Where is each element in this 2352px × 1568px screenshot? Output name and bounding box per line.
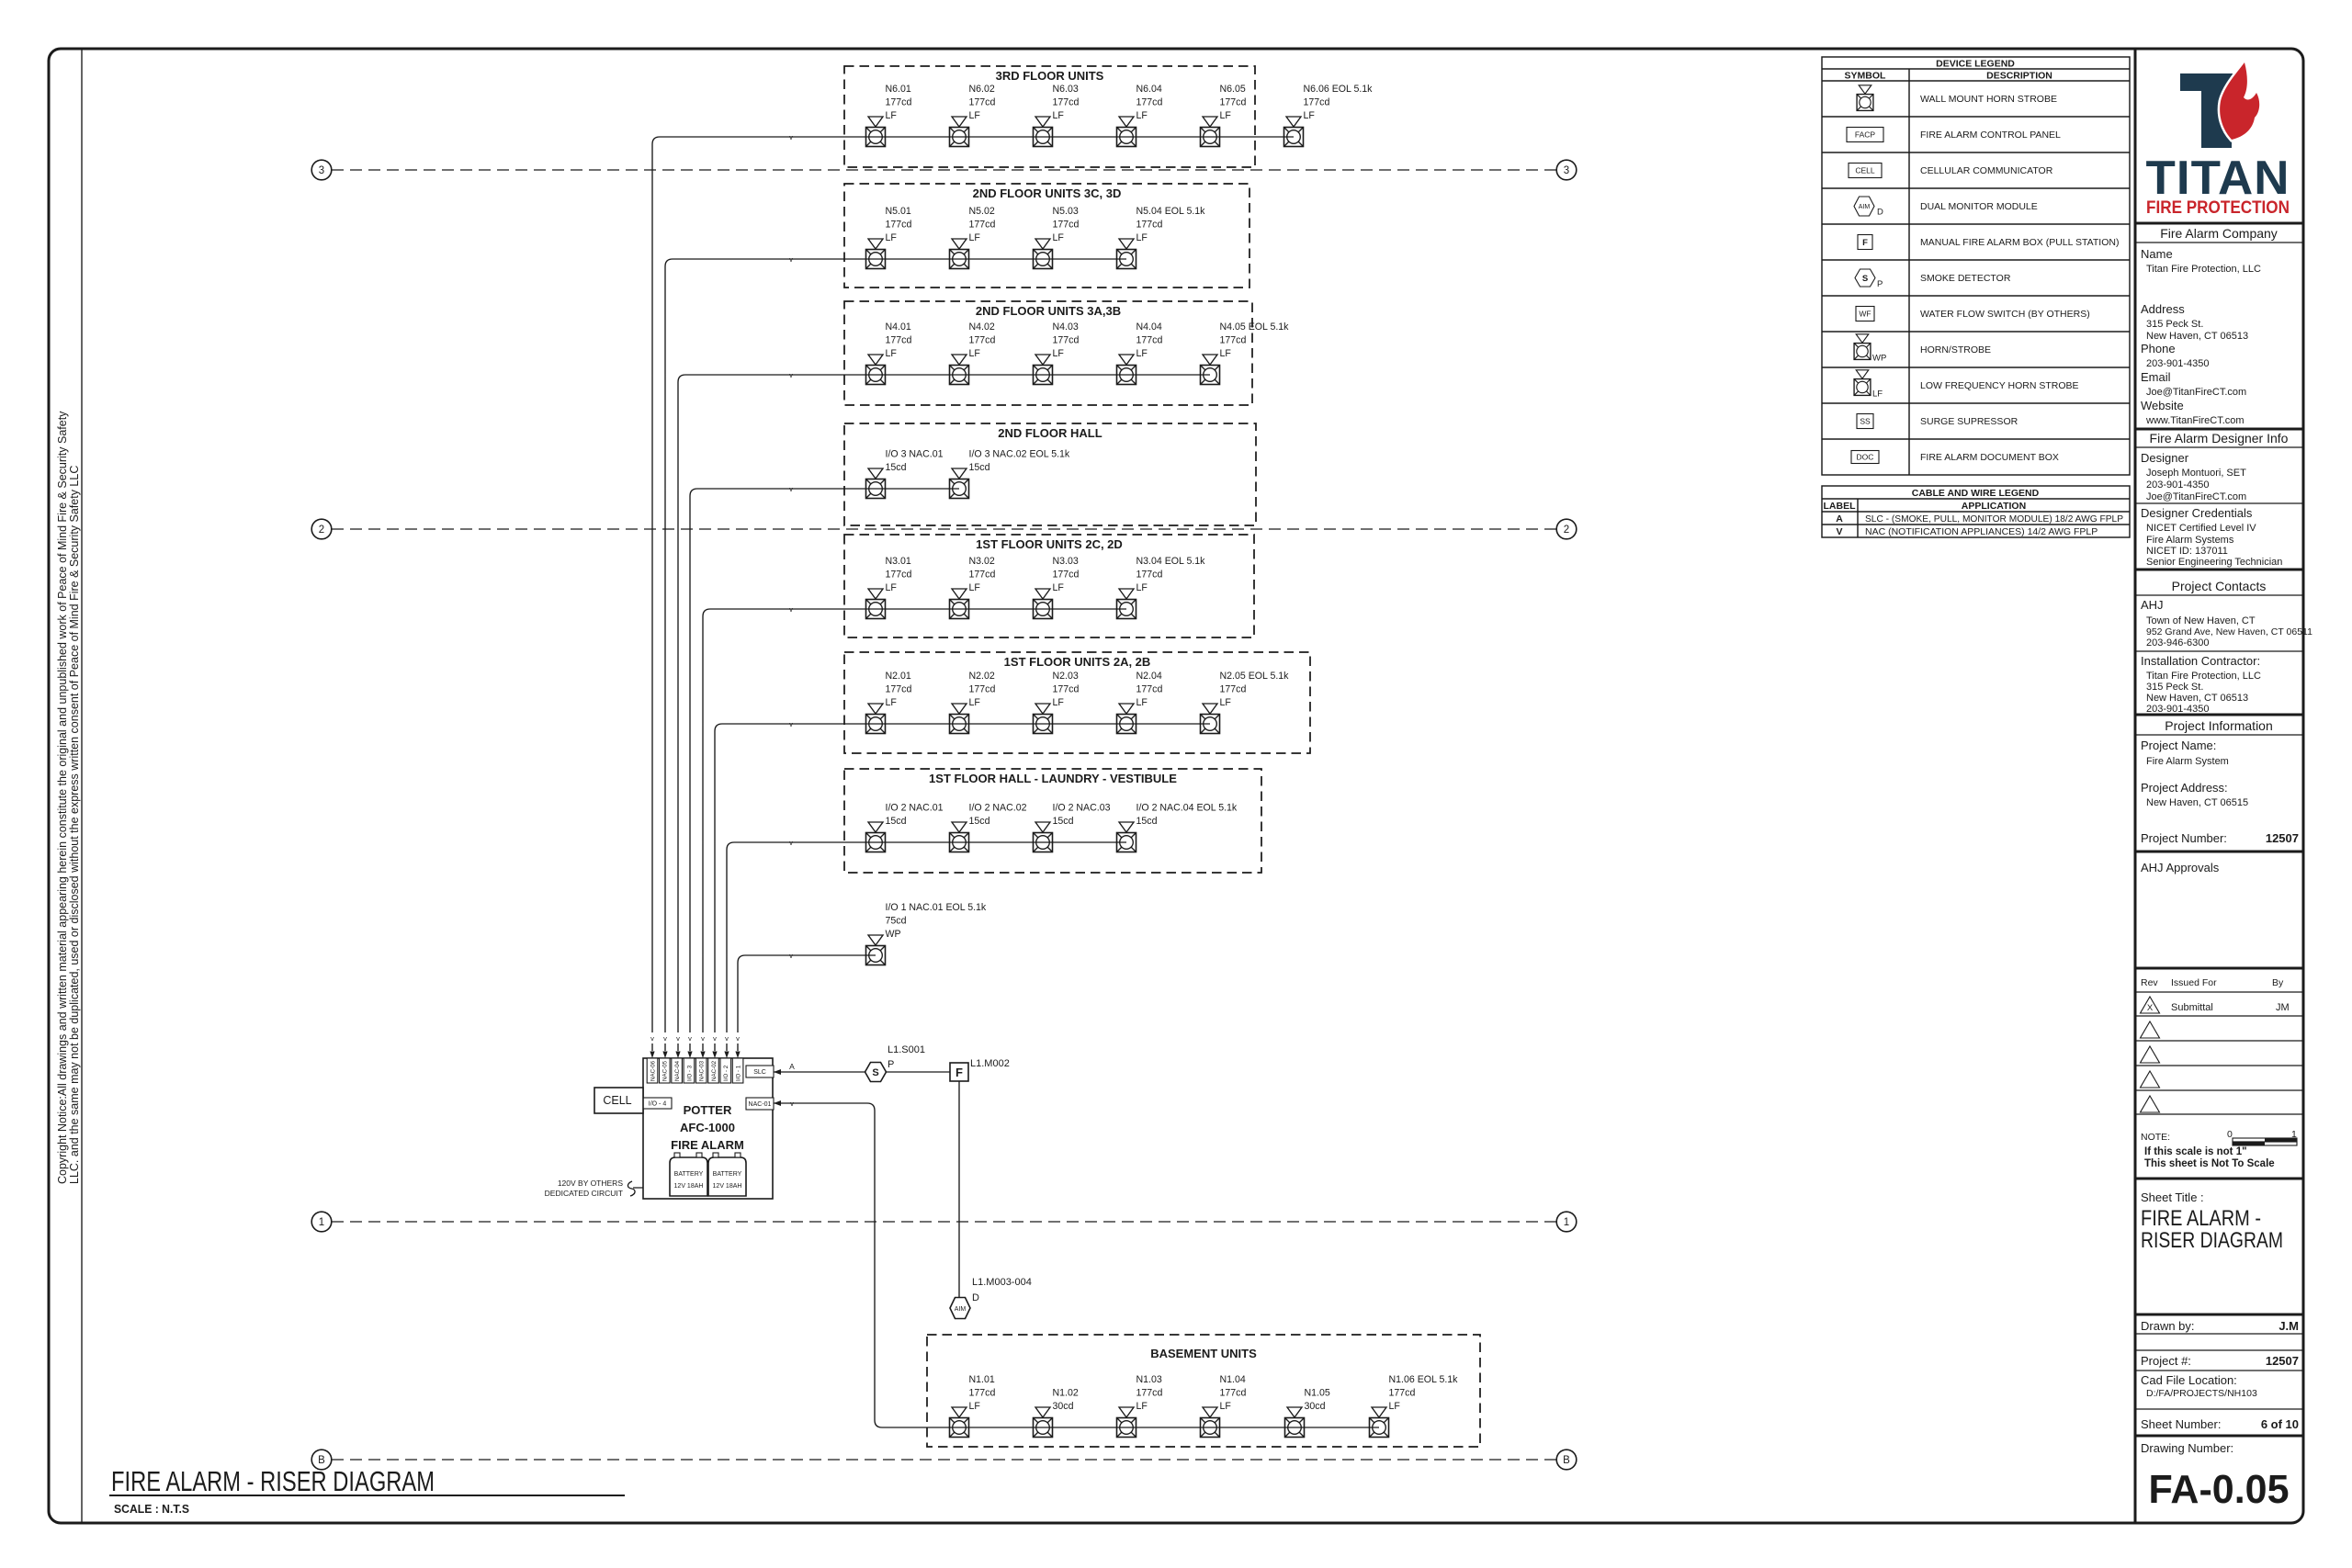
- svg-text:LF: LF: [1053, 697, 1065, 708]
- svg-text:Rev: Rev: [2141, 977, 2158, 988]
- svg-text:FACP: FACP: [1855, 130, 1876, 140]
- svg-text:Fire Alarm Systems: Fire Alarm Systems: [2146, 535, 2234, 546]
- svg-text:I/O 2 NAC.03: I/O 2 NAC.03: [1053, 803, 1111, 814]
- svg-text:This sheet is Not To Scale: This sheet is Not To Scale: [2144, 1158, 2275, 1169]
- svg-text:177cd: 177cd: [1136, 335, 1163, 346]
- svg-text:177cd: 177cd: [1136, 1388, 1163, 1399]
- svg-text:V: V: [1836, 526, 1842, 537]
- svg-text:Installation Contractor:: Installation Contractor:: [2141, 654, 2260, 668]
- svg-text:F: F: [1862, 238, 1868, 248]
- svg-text:SYMBOL: SYMBOL: [1845, 71, 1887, 82]
- svg-text:NAC-05: NAC-05: [662, 1060, 669, 1081]
- svg-text:I/O 2 NAC.02: I/O 2 NAC.02: [969, 803, 1027, 814]
- svg-text:P: P: [888, 1059, 894, 1070]
- svg-text:N1.03: N1.03: [1136, 1374, 1162, 1385]
- svg-text:AHJ: AHJ: [2141, 598, 2164, 612]
- svg-text:D: D: [1877, 208, 1883, 218]
- svg-text:LF: LF: [1053, 110, 1065, 121]
- svg-text:v: v: [650, 1034, 654, 1043]
- svg-text:DEDICATED CIRCUIT: DEDICATED CIRCUIT: [545, 1189, 623, 1198]
- svg-text:Fire Alarm System: Fire Alarm System: [2146, 756, 2229, 767]
- svg-text:CABLE AND WIRE LEGEND: CABLE AND WIRE LEGEND: [1912, 488, 2040, 499]
- svg-text:N1.04: N1.04: [1220, 1374, 1246, 1385]
- svg-text:N5.02: N5.02: [969, 206, 995, 217]
- svg-text:2ND FLOOR UNITS 3C, 3D: 2ND FLOOR UNITS 3C, 3D: [973, 186, 1122, 200]
- svg-text:LF: LF: [886, 697, 898, 708]
- svg-text:177cd: 177cd: [886, 684, 912, 695]
- svg-text:NAC-01: NAC-01: [749, 1101, 772, 1108]
- svg-text:Project Name:: Project Name:: [2141, 739, 2216, 752]
- svg-text:I/O 3 NAC.02 EOL 5.1k: I/O 3 NAC.02 EOL 5.1k: [969, 449, 1070, 460]
- svg-text:NICET Certified Level IV: NICET Certified Level IV: [2146, 523, 2256, 534]
- svg-text:177cd: 177cd: [886, 97, 912, 108]
- svg-text:LF: LF: [1053, 232, 1065, 243]
- svg-text:AIM: AIM: [1859, 204, 1871, 210]
- svg-text:BATTERY: BATTERY: [674, 1171, 704, 1178]
- svg-text:Sheet Title :: Sheet Title :: [2141, 1190, 2204, 1204]
- svg-text:177cd: 177cd: [1389, 1388, 1416, 1399]
- svg-text:952 Grand Ave, New Haven, CT 0: 952 Grand Ave, New Haven, CT 06511: [2146, 626, 2312, 637]
- svg-text:Project Number:: Project Number:: [2141, 831, 2227, 845]
- svg-text:1ST FLOOR UNITS 2A, 2B: 1ST FLOOR UNITS 2A, 2B: [1004, 655, 1151, 669]
- svg-text:N4.02: N4.02: [969, 321, 995, 333]
- svg-text:N4.03: N4.03: [1053, 321, 1079, 333]
- svg-text:NAC (NOTIFICATION APPLIANCES): NAC (NOTIFICATION APPLIANCES) 14/2 AWG F…: [1865, 526, 2098, 537]
- svg-text:MANUAL FIRE ALARM BOX (PULL ST: MANUAL FIRE ALARM BOX (PULL STATION): [1920, 237, 2119, 248]
- svg-text:APPLICATION: APPLICATION: [1962, 501, 2026, 512]
- svg-text:WATER FLOW SWITCH (BY OTHERS): WATER FLOW SWITCH (BY OTHERS): [1920, 309, 2090, 320]
- svg-text:Website: Website: [2141, 399, 2184, 412]
- svg-text:DOC: DOC: [1857, 453, 1874, 462]
- svg-text:AIM: AIM: [955, 1306, 967, 1313]
- svg-text:FIRE ALARM - RISER DIAGRAM: FIRE ALARM - RISER DIAGRAM: [111, 1465, 435, 1497]
- svg-text:Phone: Phone: [2141, 342, 2176, 355]
- svg-text:LF: LF: [1053, 582, 1065, 593]
- svg-text:www.TitanFireCT.com: www.TitanFireCT.com: [2145, 415, 2245, 426]
- svg-text:N6.06 EOL 5.1k: N6.06 EOL 5.1k: [1304, 84, 1374, 95]
- svg-text:LF: LF: [969, 348, 981, 359]
- svg-text:A: A: [1836, 513, 1843, 525]
- svg-text:N4.01: N4.01: [886, 321, 911, 333]
- svg-text:12507: 12507: [2266, 1354, 2299, 1368]
- svg-text:LF: LF: [969, 582, 981, 593]
- svg-text:Joe@TitanFireCT.com: Joe@TitanFireCT.com: [2146, 491, 2246, 502]
- svg-text:J.M: J.M: [2278, 1319, 2299, 1333]
- svg-text:2: 2: [319, 525, 324, 536]
- svg-text:SURGE SUPRESSOR: SURGE SUPRESSOR: [1920, 416, 2018, 427]
- svg-text:I/O 2 NAC.01: I/O 2 NAC.01: [886, 803, 944, 814]
- svg-text:Joseph Montuori, SET: Joseph Montuori, SET: [2146, 468, 2246, 479]
- svg-text:Joe@TitanFireCT.com: Joe@TitanFireCT.com: [2146, 387, 2246, 398]
- svg-text:WF: WF: [1859, 310, 1871, 319]
- svg-text:Email: Email: [2141, 370, 2171, 384]
- svg-text:SLC: SLC: [753, 1069, 766, 1076]
- svg-text:POTTER: POTTER: [684, 1103, 732, 1117]
- svg-text:LF: LF: [1872, 389, 1883, 400]
- svg-text:Sheet Number:: Sheet Number:: [2141, 1417, 2221, 1431]
- svg-text:I/O - 2: I/O - 2: [723, 1065, 729, 1081]
- svg-text:v: v: [676, 1034, 680, 1043]
- svg-text:1: 1: [1564, 1217, 1569, 1228]
- svg-text:LF: LF: [1220, 348, 1232, 359]
- svg-text:A: A: [789, 1062, 795, 1071]
- svg-text:N2.02: N2.02: [969, 671, 995, 682]
- svg-text:CELL: CELL: [603, 1094, 631, 1107]
- svg-text:203-901-4350: 203-901-4350: [2146, 479, 2210, 491]
- svg-text:Titan Fire Protection, LLC: Titan Fire Protection, LLC: [2146, 671, 2261, 682]
- svg-text:2ND FLOOR UNITS 3A,3B: 2ND FLOOR UNITS 3A,3B: [976, 304, 1121, 318]
- svg-text:LF: LF: [1304, 110, 1316, 121]
- svg-text:177cd: 177cd: [886, 220, 912, 231]
- svg-text:N2.04: N2.04: [1136, 671, 1162, 682]
- svg-text:177cd: 177cd: [886, 570, 912, 581]
- svg-text:B: B: [1563, 1455, 1570, 1466]
- svg-text:NAC-03: NAC-03: [699, 1060, 706, 1081]
- svg-text:N6.02: N6.02: [969, 84, 995, 95]
- svg-text:Submittal: Submittal: [2171, 1002, 2213, 1013]
- svg-text:15cd: 15cd: [1136, 816, 1158, 827]
- svg-text:15cd: 15cd: [969, 816, 990, 827]
- svg-text:v: v: [789, 720, 793, 728]
- svg-text:I/O 2 NAC.04 EOL 5.1k: I/O 2 NAC.04 EOL 5.1k: [1136, 803, 1238, 814]
- svg-text:12507: 12507: [2266, 831, 2299, 845]
- svg-text:I/O - 1: I/O - 1: [736, 1065, 742, 1081]
- svg-text:15cd: 15cd: [1053, 816, 1074, 827]
- svg-text:315 Peck St.: 315 Peck St.: [2146, 682, 2203, 693]
- svg-text:LF: LF: [1220, 697, 1232, 708]
- svg-text:1ST FLOOR HALL - LAUNDRY - VES: 1ST FLOOR HALL - LAUNDRY - VESTIBULE: [929, 772, 1177, 785]
- svg-text:v: v: [789, 133, 793, 141]
- svg-text:v: v: [789, 485, 793, 493]
- svg-text:S: S: [872, 1067, 878, 1078]
- svg-text:N6.04: N6.04: [1136, 84, 1162, 95]
- svg-text:Designer Credentials: Designer Credentials: [2141, 506, 2253, 520]
- svg-text:v: v: [789, 255, 793, 264]
- svg-text:N6.03: N6.03: [1053, 84, 1079, 95]
- svg-text:177cd: 177cd: [1053, 335, 1080, 346]
- svg-text:Designer: Designer: [2141, 451, 2189, 465]
- svg-text:v: v: [789, 952, 793, 960]
- svg-text:Name: Name: [2141, 247, 2173, 261]
- svg-text:New Haven, CT 06515: New Haven, CT 06515: [2146, 797, 2248, 808]
- svg-text:FIRE ALARM DOCUMENT BOX: FIRE ALARM DOCUMENT BOX: [1920, 452, 2059, 463]
- svg-text:WP: WP: [886, 929, 901, 940]
- svg-text:177cd: 177cd: [1053, 684, 1080, 695]
- svg-text:N2.01: N2.01: [886, 671, 911, 682]
- svg-text:N3.02: N3.02: [969, 556, 995, 567]
- svg-text:NAC-04: NAC-04: [674, 1060, 681, 1081]
- svg-text:177cd: 177cd: [1053, 220, 1080, 231]
- svg-text:Project Address:: Project Address:: [2141, 781, 2228, 795]
- svg-text:New Haven, CT 06513: New Haven, CT 06513: [2146, 331, 2248, 342]
- svg-text:I/O 3 NAC.01: I/O 3 NAC.01: [886, 449, 944, 460]
- svg-text:JM: JM: [2276, 1002, 2290, 1013]
- svg-text:1ST FLOOR UNITS 2C, 2D: 1ST FLOOR UNITS 2C, 2D: [976, 537, 1123, 551]
- svg-text:Address: Address: [2141, 302, 2185, 316]
- svg-text:2ND FLOOR HALL: 2ND FLOOR HALL: [998, 426, 1102, 440]
- svg-text:v: v: [789, 839, 793, 847]
- svg-text:15cd: 15cd: [886, 816, 907, 827]
- svg-text:S: S: [1862, 274, 1868, 284]
- svg-text:N1.06 EOL 5.1k: N1.06 EOL 5.1k: [1389, 1374, 1459, 1385]
- svg-text:v: v: [663, 1034, 667, 1043]
- svg-text:New Haven, CT 06513: New Haven, CT 06513: [2146, 693, 2248, 704]
- svg-text:WALL MOUNT HORN STROBE: WALL MOUNT HORN STROBE: [1920, 94, 2057, 105]
- svg-text:D:/FA/PROJECTS/NH103: D:/FA/PROJECTS/NH103: [2146, 1388, 2257, 1399]
- svg-text:LABEL: LABEL: [1824, 501, 1857, 512]
- svg-text:Drawing Number:: Drawing Number:: [2141, 1441, 2233, 1455]
- svg-text:SMOKE DETECTOR: SMOKE DETECTOR: [1920, 273, 2011, 284]
- svg-text:Town of New Haven, CT: Town of New Haven, CT: [2146, 615, 2256, 626]
- svg-text:FIRE PROTECTION: FIRE PROTECTION: [2146, 198, 2290, 218]
- svg-text:177cd: 177cd: [969, 684, 996, 695]
- svg-text:D: D: [972, 1292, 979, 1303]
- svg-text:1: 1: [319, 1217, 324, 1228]
- svg-text:N6.05: N6.05: [1220, 84, 1246, 95]
- svg-text:N5.01: N5.01: [886, 206, 911, 217]
- svg-text:LF: LF: [1389, 1401, 1401, 1412]
- svg-text:NOTE:: NOTE:: [2141, 1132, 2170, 1143]
- svg-text:N3.01: N3.01: [886, 556, 911, 567]
- svg-text:LF: LF: [886, 232, 898, 243]
- svg-text:2: 2: [1564, 525, 1569, 536]
- svg-text:LLC. and the same may not be d: LLC. and the same may not be duplicated,…: [68, 466, 81, 1184]
- svg-text:N6.01: N6.01: [886, 84, 911, 95]
- svg-text:Senior Engineering Technician: Senior Engineering Technician: [2146, 557, 2282, 568]
- svg-text:75cd: 75cd: [886, 916, 907, 927]
- svg-text:L1.M002: L1.M002: [970, 1058, 1010, 1069]
- svg-text:LF: LF: [1220, 1401, 1232, 1412]
- svg-text:Titan Fire Protection, LLC: Titan Fire Protection, LLC: [2146, 264, 2261, 275]
- svg-text:FIRE ALARM: FIRE ALARM: [671, 1138, 744, 1152]
- svg-text:N5.03: N5.03: [1053, 206, 1079, 217]
- svg-text:177cd: 177cd: [1220, 684, 1247, 695]
- svg-text:v: v: [725, 1034, 729, 1043]
- svg-text:v: v: [789, 605, 793, 614]
- svg-text:v: v: [701, 1034, 705, 1043]
- svg-text:DEVICE LEGEND: DEVICE LEGEND: [1936, 59, 2015, 70]
- svg-text:N2.05 EOL 5.1k: N2.05 EOL 5.1k: [1220, 671, 1290, 682]
- svg-text:I/O 1 NAC.01 EOL 5.1k: I/O 1 NAC.01 EOL 5.1k: [886, 902, 987, 913]
- svg-text:30cd: 30cd: [1053, 1401, 1074, 1412]
- svg-text:I/O - 4: I/O - 4: [649, 1101, 667, 1108]
- svg-text:Project #:: Project #:: [2141, 1354, 2191, 1368]
- svg-text:FIRE ALARM CONTROL PANEL: FIRE ALARM CONTROL PANEL: [1920, 130, 2061, 141]
- svg-text:N5.04 EOL 5.1k: N5.04 EOL 5.1k: [1136, 206, 1206, 217]
- svg-text:FA-0.05: FA-0.05: [2149, 1467, 2290, 1512]
- svg-text:P: P: [1877, 279, 1883, 289]
- svg-text:12V 18AH: 12V 18AH: [713, 1183, 742, 1190]
- svg-text:12V 18AH: 12V 18AH: [674, 1183, 704, 1190]
- svg-text:177cd: 177cd: [1220, 1388, 1247, 1399]
- svg-text:177cd: 177cd: [969, 1388, 996, 1399]
- svg-text:3RD FLOOR UNITS: 3RD FLOOR UNITS: [996, 69, 1104, 83]
- svg-text:15cd: 15cd: [969, 462, 990, 473]
- svg-text:177cd: 177cd: [1136, 97, 1163, 108]
- svg-text:177cd: 177cd: [1136, 684, 1163, 695]
- svg-text:177cd: 177cd: [886, 335, 912, 346]
- svg-text:LF: LF: [969, 232, 981, 243]
- svg-text:Project Information: Project Information: [2165, 718, 2273, 733]
- svg-text:LF: LF: [886, 110, 898, 121]
- svg-text:177cd: 177cd: [1220, 97, 1247, 108]
- svg-text:177cd: 177cd: [969, 220, 996, 231]
- svg-text:SCALE : N.T.S: SCALE : N.T.S: [114, 1503, 189, 1516]
- svg-text:LOW FREQUENCY HORN STROBE: LOW FREQUENCY HORN STROBE: [1920, 380, 2079, 391]
- svg-text:177cd: 177cd: [1304, 97, 1330, 108]
- svg-text:Fire Alarm Designer Info: Fire Alarm Designer Info: [2150, 431, 2289, 446]
- svg-text:BATTERY: BATTERY: [713, 1171, 742, 1178]
- svg-text:LF: LF: [1136, 1401, 1148, 1412]
- svg-text:N4.04: N4.04: [1136, 321, 1162, 333]
- svg-text:Project Contacts: Project Contacts: [2172, 579, 2267, 593]
- svg-text:LF: LF: [1136, 110, 1148, 121]
- svg-text:CELL: CELL: [1855, 166, 1875, 175]
- svg-text:SS: SS: [1860, 417, 1871, 426]
- svg-text:30cd: 30cd: [1305, 1401, 1326, 1412]
- svg-text:177cd: 177cd: [969, 97, 996, 108]
- svg-text:L1.S001: L1.S001: [888, 1044, 925, 1055]
- svg-text:Cad File Location:: Cad File Location:: [2141, 1373, 2237, 1387]
- svg-text:LF: LF: [1220, 110, 1232, 121]
- svg-text:177cd: 177cd: [1136, 570, 1163, 581]
- svg-text:Copyright Notice:All drawings: Copyright Notice:All drawings and writte…: [56, 411, 69, 1184]
- svg-text:CELLULAR COMMUNICATOR: CELLULAR COMMUNICATOR: [1920, 165, 2053, 176]
- svg-text:N1.05: N1.05: [1305, 1388, 1330, 1399]
- svg-text:N3.04 EOL 5.1k: N3.04 EOL 5.1k: [1136, 556, 1206, 567]
- svg-text:LF: LF: [969, 1401, 981, 1412]
- svg-text:I/O - 3: I/O - 3: [686, 1065, 693, 1081]
- svg-text:DUAL MONITOR MODULE: DUAL MONITOR MODULE: [1920, 201, 2038, 212]
- svg-text:SLC - (SMOKE, PULL, MONITOR MO: SLC - (SMOKE, PULL, MONITOR MODULE) 18/2…: [1865, 513, 2123, 525]
- svg-text:177cd: 177cd: [1136, 220, 1163, 231]
- svg-text:LF: LF: [1136, 697, 1148, 708]
- svg-text:LF: LF: [886, 348, 898, 359]
- svg-text:By: By: [2272, 977, 2284, 988]
- svg-text:v: v: [736, 1034, 740, 1043]
- svg-text:WP: WP: [1872, 354, 1886, 364]
- svg-text:If this scale is not 1": If this scale is not 1": [2144, 1146, 2247, 1157]
- svg-text:LF: LF: [969, 110, 981, 121]
- svg-text:177cd: 177cd: [969, 570, 996, 581]
- svg-text:N1.02: N1.02: [1053, 1388, 1079, 1399]
- svg-text:LF: LF: [969, 697, 981, 708]
- svg-text:RISER DIAGRAM: RISER DIAGRAM: [2141, 1228, 2283, 1253]
- svg-text:Issued For: Issued For: [2171, 977, 2217, 988]
- svg-text:177cd: 177cd: [1053, 97, 1080, 108]
- svg-text:v: v: [789, 371, 793, 379]
- svg-text:LF: LF: [1136, 582, 1148, 593]
- svg-text:AHJ Approvals: AHJ Approvals: [2141, 861, 2220, 874]
- svg-text:177cd: 177cd: [1053, 570, 1080, 581]
- svg-text:3: 3: [319, 165, 324, 176]
- svg-text:15cd: 15cd: [886, 462, 907, 473]
- svg-text:Drawn by:: Drawn by:: [2141, 1319, 2195, 1333]
- svg-text:NAC-02: NAC-02: [711, 1060, 718, 1081]
- svg-text:AFC-1000: AFC-1000: [680, 1121, 735, 1134]
- svg-text:6 of 10: 6 of 10: [2261, 1417, 2299, 1431]
- svg-text:120V BY OTHERS: 120V BY OTHERS: [558, 1179, 624, 1188]
- svg-text:LF: LF: [1053, 348, 1065, 359]
- svg-text:N3.03: N3.03: [1053, 556, 1079, 567]
- svg-text:v: v: [713, 1034, 717, 1043]
- svg-text:203-901-4350: 203-901-4350: [2146, 358, 2210, 369]
- svg-text:NAC-06: NAC-06: [650, 1060, 656, 1081]
- svg-text:F: F: [955, 1066, 963, 1079]
- svg-text:203-901-4350: 203-901-4350: [2146, 704, 2210, 715]
- svg-text:X: X: [2147, 1003, 2154, 1013]
- svg-text:v: v: [688, 1034, 692, 1043]
- svg-text:DESCRIPTION: DESCRIPTION: [1986, 71, 2052, 82]
- svg-text:v: v: [790, 1100, 794, 1108]
- svg-text:N1.01: N1.01: [969, 1374, 995, 1385]
- svg-text:BASEMENT UNITS: BASEMENT UNITS: [1150, 1347, 1257, 1360]
- svg-text:N4.05 EOL 5.1k: N4.05 EOL 5.1k: [1220, 321, 1290, 333]
- svg-text:LF: LF: [1136, 348, 1148, 359]
- svg-text:NICET ID: 137011: NICET ID: 137011: [2146, 546, 2228, 557]
- svg-text:LF: LF: [1136, 232, 1148, 243]
- svg-text:L1.M003-004: L1.M003-004: [972, 1277, 1032, 1288]
- svg-text:HORN/STROBE: HORN/STROBE: [1920, 344, 1991, 355]
- svg-text:203-946-6300: 203-946-6300: [2146, 637, 2210, 649]
- svg-text:177cd: 177cd: [1220, 335, 1247, 346]
- svg-text:N2.03: N2.03: [1053, 671, 1079, 682]
- svg-text:FIRE ALARM -: FIRE ALARM -: [2141, 1206, 2261, 1231]
- svg-text:LF: LF: [886, 582, 898, 593]
- svg-text:3: 3: [1564, 165, 1569, 176]
- svg-text:177cd: 177cd: [969, 335, 996, 346]
- svg-text:TITAN: TITAN: [2146, 152, 2290, 205]
- svg-text:315 Peck St.: 315 Peck St.: [2146, 319, 2203, 330]
- svg-text:Fire Alarm Company: Fire Alarm Company: [2160, 226, 2278, 241]
- svg-text:0: 0: [2227, 1129, 2233, 1140]
